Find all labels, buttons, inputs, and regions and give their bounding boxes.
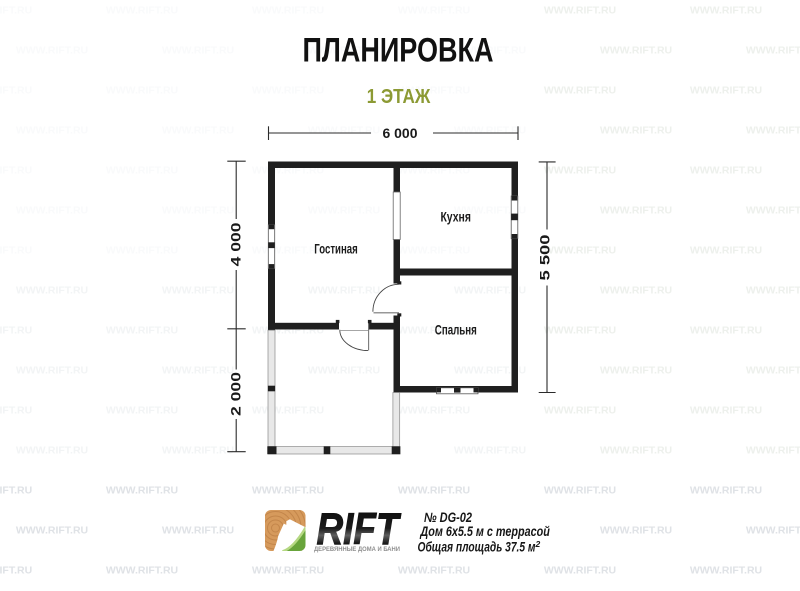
svg-text:WWW.RIFT.RU: WWW.RIFT.RU xyxy=(690,85,762,97)
svg-text:WWW.RIFT.RU: WWW.RIFT.RU xyxy=(544,565,616,577)
svg-text:WWW.RIFT.RU: WWW.RIFT.RU xyxy=(544,85,616,97)
svg-text:WWW.RIFT.RU: WWW.RIFT.RU xyxy=(106,485,178,497)
svg-text:ДЕРЕВЯННЫЕ ДОМА И БАНИ: ДЕРЕВЯННЫЕ ДОМА И БАНИ xyxy=(314,546,400,553)
svg-text:ПЛАНИРОВКА: ПЛАНИРОВКА xyxy=(303,31,494,69)
svg-text:WWW.RIFT.RU: WWW.RIFT.RU xyxy=(16,45,88,57)
svg-text:WWW.RIFT.RU: WWW.RIFT.RU xyxy=(454,125,526,137)
svg-text:WWW.RIFT.RU: WWW.RIFT.RU xyxy=(16,525,88,537)
svg-text:WWW.RIFT.RU: WWW.RIFT.RU xyxy=(106,165,178,177)
svg-text:WWW.RIFT.RU: WWW.RIFT.RU xyxy=(106,5,178,17)
svg-text:WWW.RIFT.RU: WWW.RIFT.RU xyxy=(746,525,800,537)
svg-text:4 000: 4 000 xyxy=(228,222,244,266)
svg-text:WWW.RIFT.RU: WWW.RIFT.RU xyxy=(0,245,32,257)
svg-text:WWW.RIFT.RU: WWW.RIFT.RU xyxy=(690,565,762,577)
svg-text:WWW.RIFT.RU: WWW.RIFT.RU xyxy=(0,5,32,17)
svg-text:WWW.RIFT.RU: WWW.RIFT.RU xyxy=(308,205,380,217)
svg-text:WWW.RIFT.RU: WWW.RIFT.RU xyxy=(16,365,88,377)
svg-text:WWW.RIFT.RU: WWW.RIFT.RU xyxy=(106,405,178,417)
svg-text:WWW.RIFT.RU: WWW.RIFT.RU xyxy=(746,285,800,297)
svg-text:WWW.RIFT.RU: WWW.RIFT.RU xyxy=(16,285,88,297)
svg-text:WWW.RIFT.RU: WWW.RIFT.RU xyxy=(746,125,800,137)
svg-text:WWW.RIFT.RU: WWW.RIFT.RU xyxy=(308,125,380,137)
svg-text:Спальня: Спальня xyxy=(435,322,477,337)
svg-text:WWW.RIFT.RU: WWW.RIFT.RU xyxy=(162,525,234,537)
svg-text:2: 2 xyxy=(535,539,541,549)
svg-text:WWW.RIFT.RU: WWW.RIFT.RU xyxy=(544,165,616,177)
svg-text:WWW.RIFT.RU: WWW.RIFT.RU xyxy=(690,405,762,417)
svg-text:2 000: 2 000 xyxy=(228,372,244,416)
svg-text:WWW.RIFT.RU: WWW.RIFT.RU xyxy=(252,485,324,497)
svg-text:WWW.RIFT.RU: WWW.RIFT.RU xyxy=(600,525,672,537)
svg-text:WWW.RIFT.RU: WWW.RIFT.RU xyxy=(162,205,234,217)
svg-text:WWW.RIFT.RU: WWW.RIFT.RU xyxy=(252,405,324,417)
svg-text:WWW.RIFT.RU: WWW.RIFT.RU xyxy=(746,205,800,217)
svg-text:5 500: 5 500 xyxy=(536,234,552,280)
svg-text:WWW.RIFT.RU: WWW.RIFT.RU xyxy=(600,285,672,297)
svg-text:WWW.RIFT.RU: WWW.RIFT.RU xyxy=(454,445,526,457)
svg-text:WWW.RIFT.RU: WWW.RIFT.RU xyxy=(398,5,470,17)
svg-text:WWW.RIFT.RU: WWW.RIFT.RU xyxy=(308,285,380,297)
svg-text:WWW.RIFT.RU: WWW.RIFT.RU xyxy=(690,5,762,17)
svg-text:WWW.RIFT.RU: WWW.RIFT.RU xyxy=(746,445,800,457)
svg-text:Дом 6х5.5 м с террасой: Дом 6х5.5 м с террасой xyxy=(420,524,551,539)
svg-text:WWW.RIFT.RU: WWW.RIFT.RU xyxy=(544,325,616,337)
svg-text:WWW.RIFT.RU: WWW.RIFT.RU xyxy=(600,445,672,457)
svg-text:Гостиная: Гостиная xyxy=(314,242,358,257)
svg-text:WWW.RIFT.RU: WWW.RIFT.RU xyxy=(162,445,234,457)
svg-text:WWW.RIFT.RU: WWW.RIFT.RU xyxy=(106,325,178,337)
svg-text:WWW.RIFT.RU: WWW.RIFT.RU xyxy=(106,85,178,97)
svg-text:WWW.RIFT.RU: WWW.RIFT.RU xyxy=(690,485,762,497)
svg-text:WWW.RIFT.RU: WWW.RIFT.RU xyxy=(252,565,324,577)
svg-text:WWW.RIFT.RU: WWW.RIFT.RU xyxy=(162,285,234,297)
svg-text:WWW.RIFT.RU: WWW.RIFT.RU xyxy=(0,325,32,337)
svg-text:WWW.RIFT.RU: WWW.RIFT.RU xyxy=(162,125,234,137)
svg-text:WWW.RIFT.RU: WWW.RIFT.RU xyxy=(106,565,178,577)
svg-text:WWW.RIFT.RU: WWW.RIFT.RU xyxy=(746,365,800,377)
svg-text:WWW.RIFT.RU: WWW.RIFT.RU xyxy=(544,485,616,497)
svg-text:WWW.RIFT.RU: WWW.RIFT.RU xyxy=(600,365,672,377)
svg-text:WWW.RIFT.RU: WWW.RIFT.RU xyxy=(398,245,470,257)
svg-text:WWW.RIFT.RU: WWW.RIFT.RU xyxy=(16,445,88,457)
svg-text:6 000: 6 000 xyxy=(383,125,418,141)
svg-text:WWW.RIFT.RU: WWW.RIFT.RU xyxy=(0,565,32,577)
svg-text:1 ЭТАЖ: 1 ЭТАЖ xyxy=(367,85,431,108)
svg-text:WWW.RIFT.RU: WWW.RIFT.RU xyxy=(398,485,470,497)
svg-text:WWW.RIFT.RU: WWW.RIFT.RU xyxy=(162,365,234,377)
svg-text:WWW.RIFT.RU: WWW.RIFT.RU xyxy=(308,365,380,377)
svg-text:WWW.RIFT.RU: WWW.RIFT.RU xyxy=(162,45,234,57)
svg-text:WWW.RIFT.RU: WWW.RIFT.RU xyxy=(0,165,32,177)
svg-text:WWW.RIFT.RU: WWW.RIFT.RU xyxy=(544,245,616,257)
svg-text:WWW.RIFT.RU: WWW.RIFT.RU xyxy=(16,125,88,137)
svg-text:WWW.RIFT.RU: WWW.RIFT.RU xyxy=(690,245,762,257)
svg-text:Кухня: Кухня xyxy=(440,209,471,224)
svg-text:WWW.RIFT.RU: WWW.RIFT.RU xyxy=(600,205,672,217)
svg-text:WWW.RIFT.RU: WWW.RIFT.RU xyxy=(600,45,672,57)
svg-text:Общая площадь 37.5 м: Общая площадь 37.5 м xyxy=(418,540,536,555)
svg-text:WWW.RIFT.RU: WWW.RIFT.RU xyxy=(690,165,762,177)
svg-text:WWW.RIFT.RU: WWW.RIFT.RU xyxy=(398,565,470,577)
svg-text:WWW.RIFT.RU: WWW.RIFT.RU xyxy=(106,245,178,257)
svg-text:WWW.RIFT.RU: WWW.RIFT.RU xyxy=(398,405,470,417)
svg-text:WWW.RIFT.RU: WWW.RIFT.RU xyxy=(544,5,616,17)
svg-text:WWW.RIFT.RU: WWW.RIFT.RU xyxy=(16,205,88,217)
svg-text:WWW.RIFT.RU: WWW.RIFT.RU xyxy=(0,405,32,417)
svg-text:№ DG-02: № DG-02 xyxy=(424,510,472,525)
svg-text:WWW.RIFT.RU: WWW.RIFT.RU xyxy=(0,85,32,97)
svg-text:WWW.RIFT.RU: WWW.RIFT.RU xyxy=(252,85,324,97)
svg-text:WWW.RIFT.RU: WWW.RIFT.RU xyxy=(0,485,32,497)
svg-text:WWW.RIFT.RU: WWW.RIFT.RU xyxy=(600,125,672,137)
svg-text:WWW.RIFT.RU: WWW.RIFT.RU xyxy=(544,405,616,417)
svg-text:WWW.RIFT.RU: WWW.RIFT.RU xyxy=(746,45,800,57)
svg-text:WWW.RIFT.RU: WWW.RIFT.RU xyxy=(690,325,762,337)
svg-text:WWW.RIFT.RU: WWW.RIFT.RU xyxy=(252,5,324,17)
